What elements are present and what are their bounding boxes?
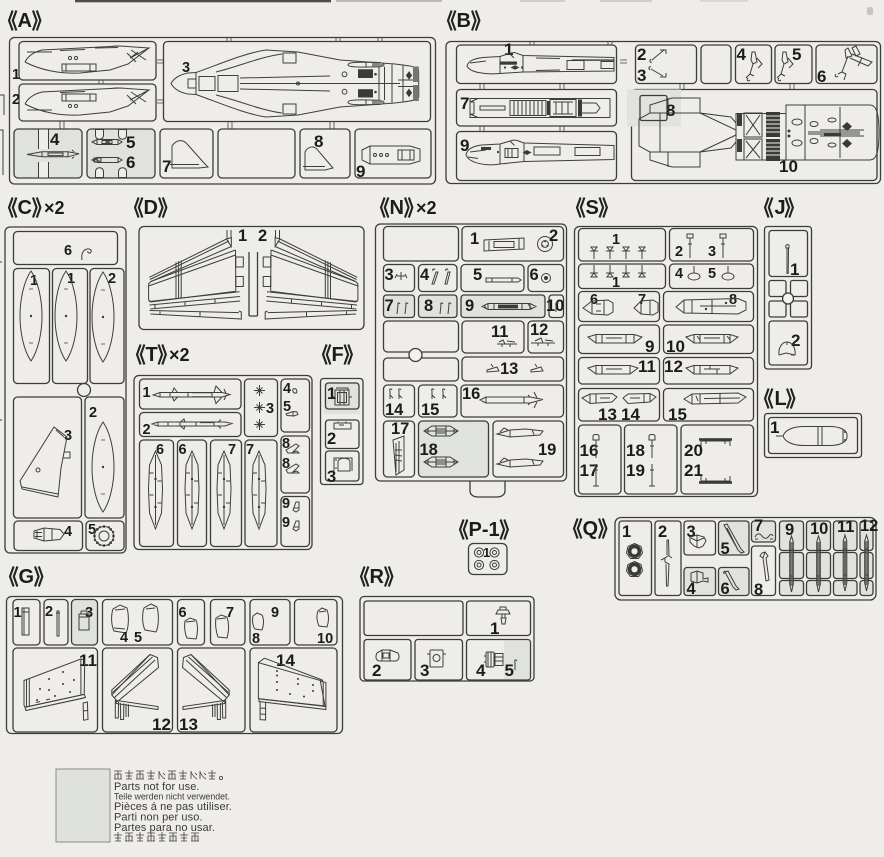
svg-text:14: 14 [385, 401, 404, 419]
svg-text:10: 10 [317, 631, 333, 647]
svg-text:6: 6 [721, 580, 730, 598]
svg-text:P-1: P-1 [469, 519, 500, 541]
svg-text:21: 21 [684, 461, 703, 480]
svg-text:2: 2 [637, 45, 646, 64]
svg-text:12: 12 [530, 321, 548, 339]
svg-text:J: J [775, 197, 786, 219]
svg-text:2: 2 [327, 430, 336, 448]
svg-text:1: 1 [143, 385, 151, 401]
svg-text:18: 18 [420, 441, 438, 459]
svg-text:3: 3 [266, 401, 274, 417]
svg-text:4: 4 [283, 381, 291, 397]
svg-text:10: 10 [810, 520, 828, 538]
svg-text:3: 3 [637, 66, 646, 85]
svg-text:15: 15 [421, 401, 439, 419]
svg-text:2: 2 [791, 331, 800, 350]
svg-text:13: 13 [500, 360, 518, 378]
svg-text:4: 4 [675, 266, 683, 282]
svg-text:13: 13 [179, 715, 198, 734]
svg-text:8: 8 [424, 297, 433, 315]
svg-text:12: 12 [664, 357, 683, 376]
svg-text:7: 7 [754, 517, 763, 535]
svg-text:9: 9 [460, 136, 469, 155]
svg-text:2: 2 [143, 422, 151, 438]
svg-text:9: 9 [785, 521, 794, 539]
svg-text:5: 5 [708, 266, 716, 282]
svg-text:C: C [18, 197, 32, 219]
svg-text:A: A [18, 10, 32, 32]
svg-text:Teile werden nicht verwendet.: Teile werden nicht verwendet. [114, 792, 230, 802]
svg-text:13: 13 [598, 405, 617, 424]
svg-text:×2: ×2 [169, 345, 190, 365]
svg-text:15: 15 [668, 405, 687, 424]
svg-text:11: 11 [638, 357, 656, 376]
svg-text:16: 16 [462, 385, 480, 403]
svg-text:D: D [144, 197, 158, 219]
svg-text:1: 1 [770, 418, 779, 437]
svg-text:×2: ×2 [416, 198, 437, 218]
svg-text:4: 4 [476, 661, 486, 680]
svg-text:1: 1 [14, 605, 22, 621]
svg-text:6: 6 [126, 153, 135, 172]
svg-text:10: 10 [666, 337, 685, 356]
svg-text:4: 4 [50, 130, 60, 149]
svg-text:4: 4 [120, 630, 128, 646]
svg-text:N: N [390, 197, 404, 219]
svg-text:7: 7 [385, 297, 394, 315]
svg-text:2: 2 [258, 227, 267, 245]
svg-text:2: 2 [89, 405, 97, 421]
svg-text:7: 7 [162, 157, 171, 176]
svg-text:19: 19 [626, 461, 645, 480]
svg-text:4: 4 [64, 524, 72, 540]
svg-text:9: 9 [465, 297, 474, 315]
svg-text:11: 11 [837, 518, 854, 536]
svg-text:1: 1 [67, 271, 75, 287]
svg-text:1: 1 [790, 260, 799, 279]
svg-text:9: 9 [356, 162, 365, 181]
svg-text:5: 5 [126, 133, 135, 152]
svg-text:G: G [19, 566, 35, 588]
svg-text:2: 2 [45, 604, 53, 620]
svg-text:1: 1 [490, 619, 499, 638]
svg-text:2: 2 [658, 523, 667, 541]
svg-text:2: 2 [372, 661, 381, 680]
svg-text:F: F [332, 344, 344, 366]
svg-text:8: 8 [252, 631, 260, 647]
svg-text:7: 7 [460, 94, 469, 113]
svg-text:Q: Q [583, 518, 599, 540]
svg-text:7: 7 [246, 442, 254, 458]
svg-text:7: 7 [638, 292, 646, 308]
svg-text:3: 3 [708, 244, 716, 260]
svg-text:6: 6 [530, 266, 539, 284]
svg-text:14: 14 [276, 651, 295, 670]
svg-text:14: 14 [621, 405, 640, 424]
svg-text:R: R [370, 566, 385, 588]
svg-text:8: 8 [666, 101, 675, 120]
svg-text:6: 6 [817, 67, 826, 86]
svg-text:12: 12 [860, 517, 878, 535]
svg-text:5: 5 [792, 45, 801, 64]
svg-text:6: 6 [179, 605, 187, 621]
svg-text:2: 2 [549, 227, 558, 245]
svg-text:5: 5 [473, 266, 482, 284]
svg-text:4: 4 [420, 266, 430, 284]
svg-text:9: 9 [271, 605, 279, 621]
svg-text:5: 5 [505, 661, 514, 680]
svg-text:8: 8 [754, 581, 763, 599]
svg-text:3: 3 [327, 468, 336, 486]
svg-text:6: 6 [179, 442, 187, 458]
svg-text:B: B [457, 10, 471, 32]
svg-text:12: 12 [152, 715, 171, 734]
svg-text:1: 1 [612, 232, 620, 248]
svg-text:1: 1 [470, 230, 479, 248]
svg-text:9: 9 [645, 337, 654, 356]
svg-text:17: 17 [391, 420, 409, 438]
svg-text:10: 10 [546, 297, 564, 315]
svg-text:11: 11 [491, 323, 508, 341]
svg-text:3: 3 [420, 661, 429, 680]
svg-text:S: S [586, 197, 599, 219]
svg-text:6: 6 [590, 292, 598, 308]
svg-text:Partes para no usar.: Partes para no usar. [114, 822, 215, 834]
svg-text:20: 20 [684, 441, 703, 460]
svg-text:T: T [146, 344, 158, 366]
svg-text:9: 9 [282, 515, 290, 531]
svg-text:5: 5 [721, 540, 730, 558]
svg-text:1: 1 [12, 67, 20, 83]
svg-text:2: 2 [12, 92, 20, 108]
svg-text:6: 6 [64, 243, 72, 259]
svg-text:1: 1 [238, 227, 247, 245]
svg-text:3: 3 [385, 266, 394, 284]
svg-text:5: 5 [134, 630, 142, 646]
svg-text:1: 1 [622, 523, 631, 541]
svg-text:7: 7 [228, 442, 236, 458]
svg-text:L: L [775, 388, 787, 410]
svg-text:2: 2 [675, 244, 683, 260]
svg-text:18: 18 [626, 441, 645, 460]
svg-text:×2: ×2 [44, 198, 65, 218]
svg-text:19: 19 [538, 441, 556, 459]
svg-text:11: 11 [79, 651, 97, 670]
svg-text:9: 9 [282, 496, 290, 512]
svg-text:4: 4 [737, 45, 747, 64]
